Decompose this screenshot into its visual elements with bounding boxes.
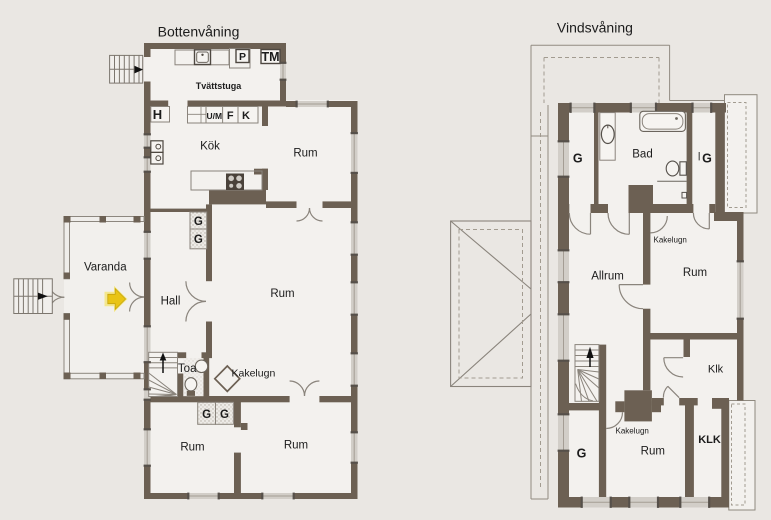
- svg-text:TM: TM: [261, 50, 279, 64]
- svg-text:Rum: Rum: [284, 440, 308, 452]
- svg-text:G: G: [702, 152, 712, 166]
- svg-text:Klk: Klk: [708, 364, 724, 376]
- svg-text:Rum: Rum: [641, 446, 665, 458]
- svg-text:Varanda: Varanda: [84, 262, 127, 274]
- svg-text:Rum: Rum: [180, 442, 204, 454]
- svg-text:U/M: U/M: [207, 111, 223, 121]
- svg-text:Toa: Toa: [178, 363, 197, 375]
- svg-text:Bottenvåning: Bottenvåning: [158, 24, 240, 40]
- svg-text:G: G: [577, 447, 587, 461]
- svg-text:Hall: Hall: [161, 296, 181, 308]
- svg-text:Tvättstuga: Tvättstuga: [196, 81, 243, 91]
- svg-text:Rum: Rum: [293, 148, 317, 160]
- svg-text:G: G: [202, 409, 211, 421]
- svg-text:Rum: Rum: [270, 288, 294, 300]
- svg-text:Kakelugn: Kakelugn: [616, 427, 649, 436]
- svg-text:Bad: Bad: [632, 149, 652, 161]
- svg-text:G: G: [573, 152, 583, 166]
- svg-text:Kök: Kök: [200, 141, 220, 153]
- svg-text:Rum: Rum: [683, 267, 707, 279]
- svg-text:G: G: [220, 409, 229, 421]
- svg-text:G: G: [194, 216, 203, 228]
- svg-text:Kakelugn: Kakelugn: [654, 236, 687, 245]
- svg-text:H: H: [153, 107, 162, 122]
- svg-text:F: F: [227, 110, 234, 122]
- svg-text:P: P: [239, 51, 246, 63]
- svg-text:Vindsvåning: Vindsvåning: [557, 20, 633, 36]
- svg-text:K: K: [242, 110, 250, 122]
- svg-text:G: G: [194, 234, 203, 246]
- svg-text:KLK: KLK: [698, 434, 721, 446]
- svg-text:Allrum: Allrum: [591, 271, 624, 283]
- svg-text:Kakelugn: Kakelugn: [232, 368, 276, 380]
